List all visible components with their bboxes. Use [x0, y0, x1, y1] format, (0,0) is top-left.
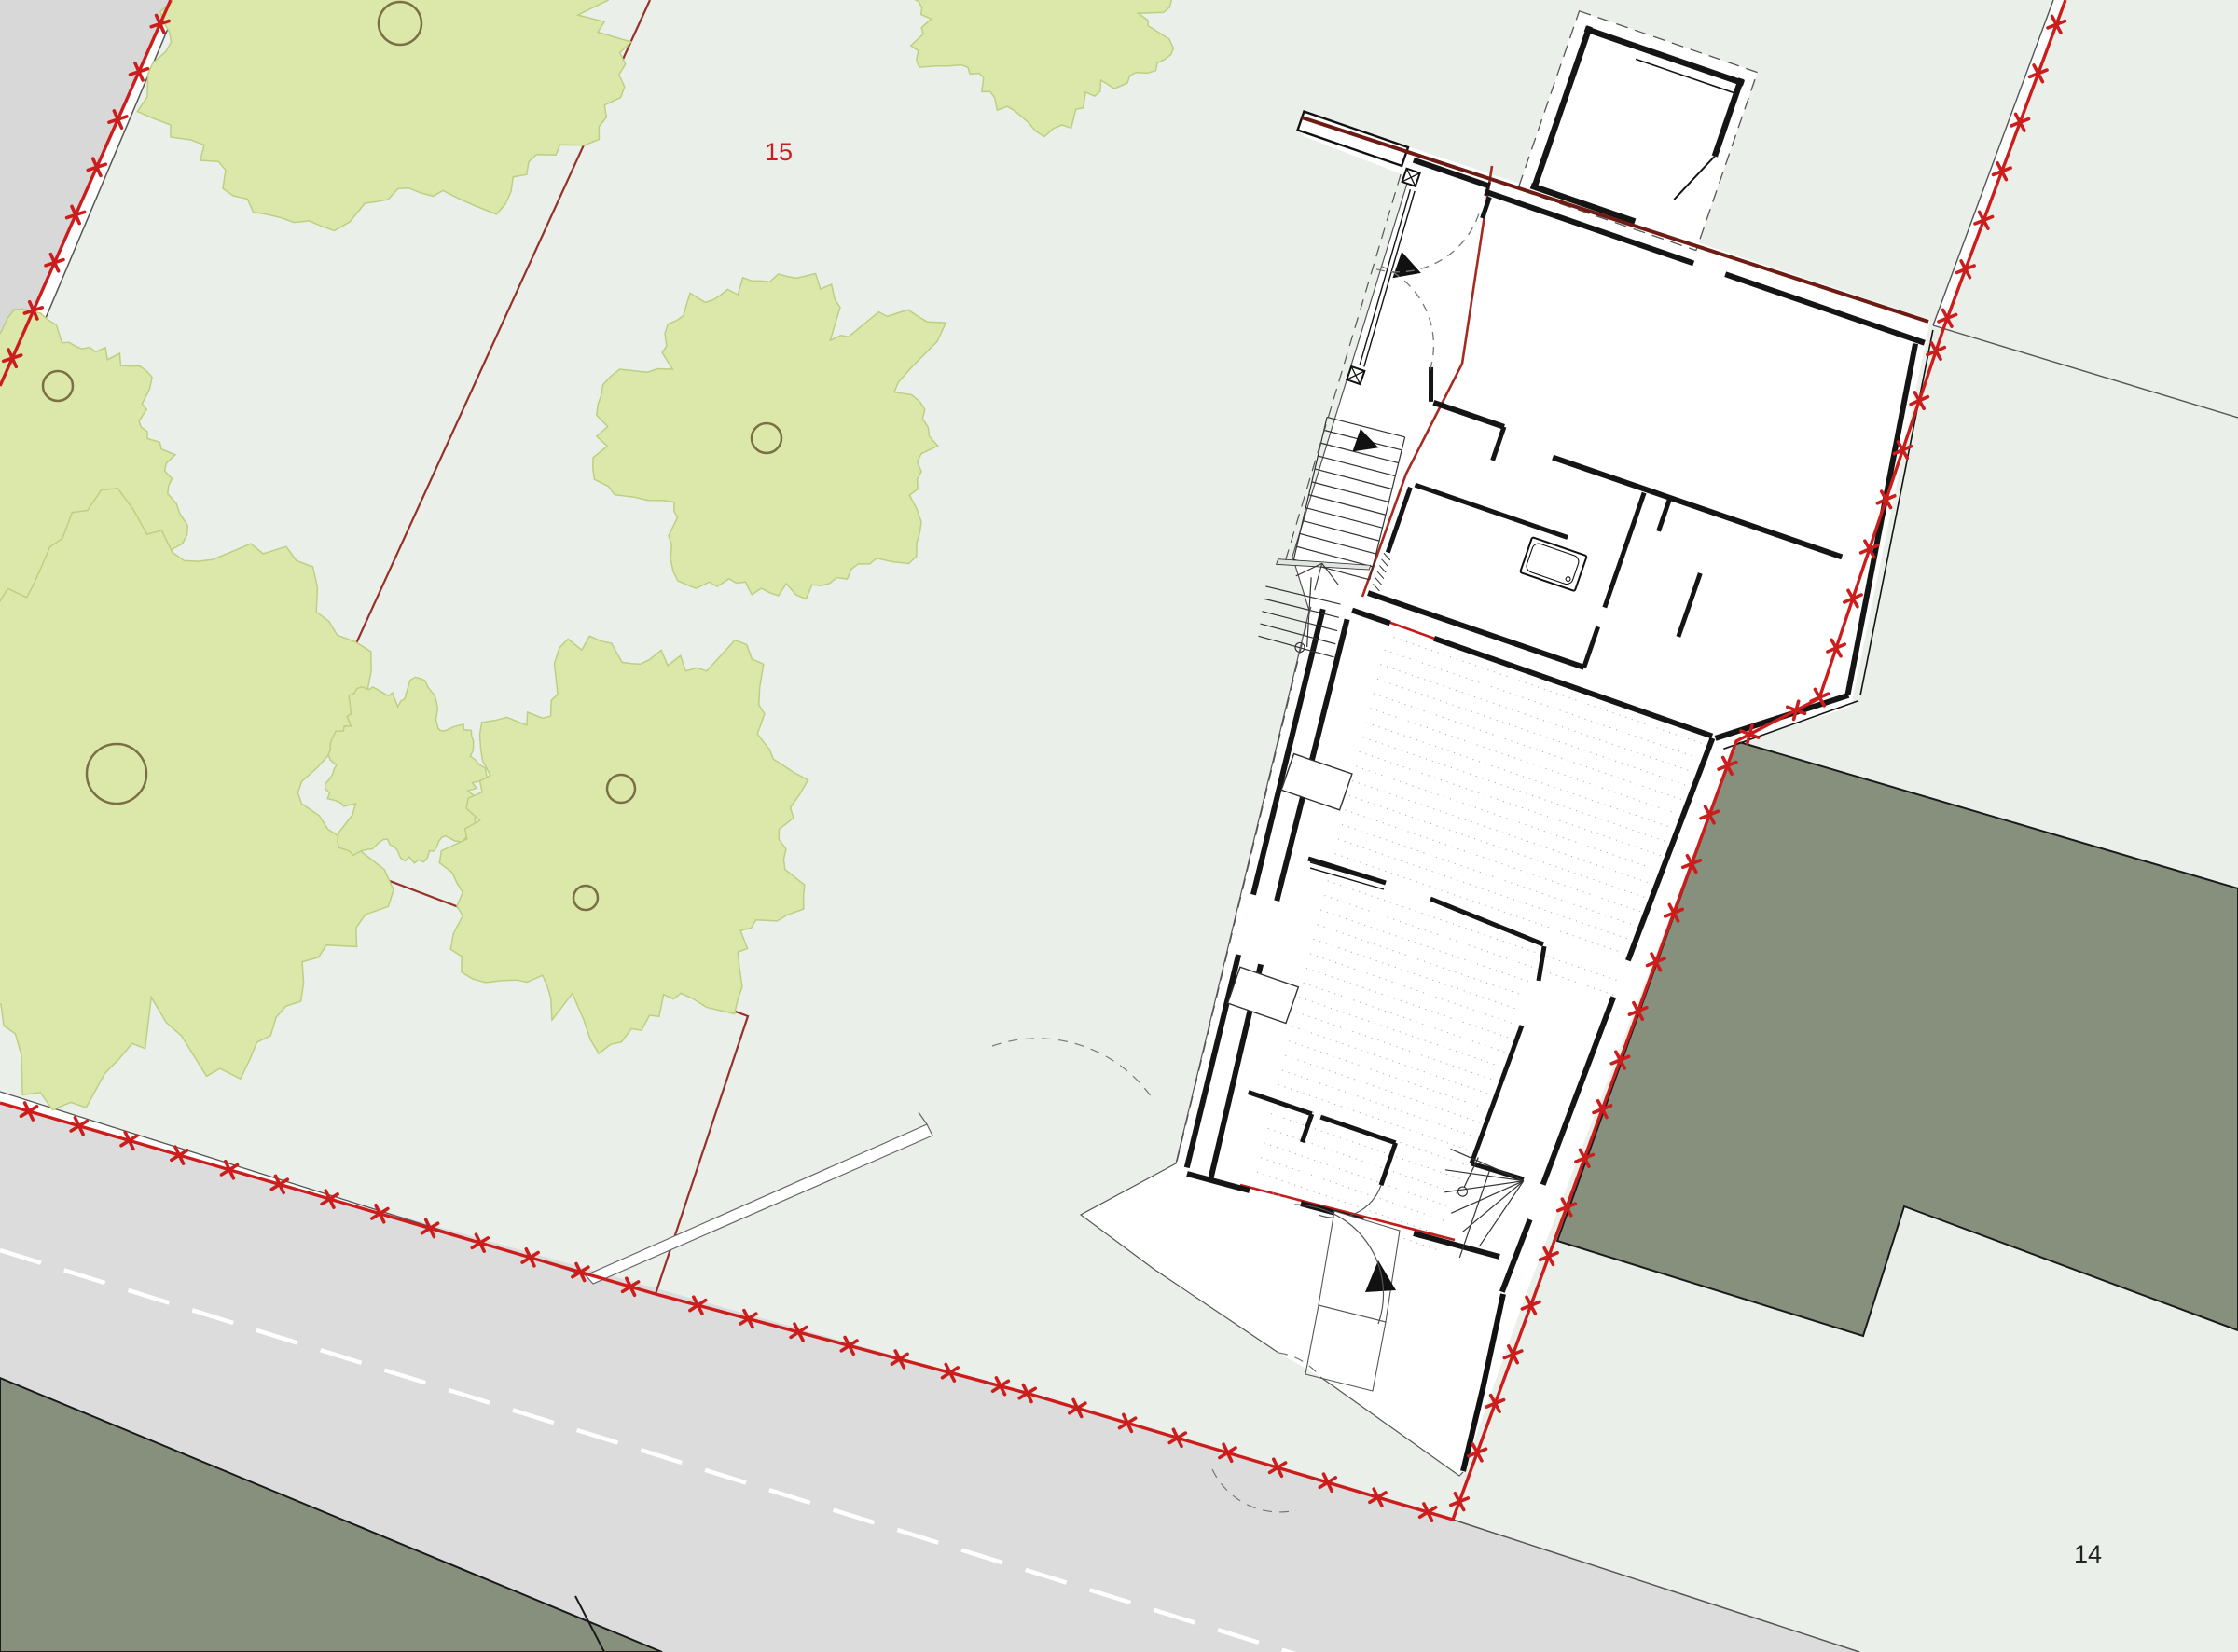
- svg-text:15: 15: [765, 138, 793, 166]
- svg-text:14: 14: [2074, 1540, 2102, 1568]
